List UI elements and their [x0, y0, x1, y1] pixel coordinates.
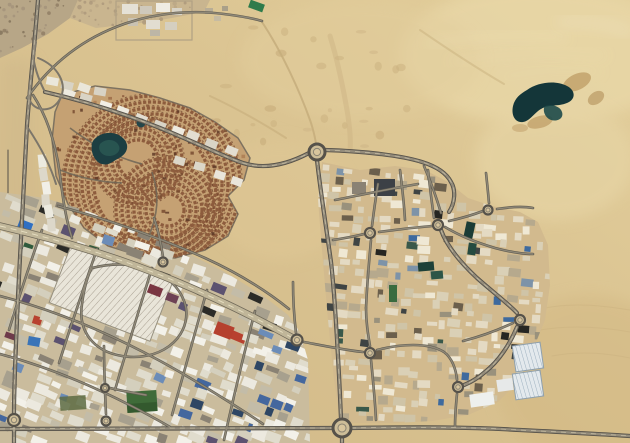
- community-roof: [114, 190, 117, 193]
- community-roof: [190, 152, 193, 155]
- warehouse-building: [491, 214, 497, 220]
- water-pond: [467, 243, 477, 256]
- warehouse-building: [391, 200, 403, 208]
- community-roof: [80, 109, 83, 112]
- warehouse-building: [397, 351, 405, 357]
- warehouse-building: [440, 312, 452, 317]
- community-roof: [162, 236, 164, 238]
- warehouse-building: [474, 383, 483, 392]
- warehouse-building: [335, 301, 347, 309]
- warehouse-building: [508, 268, 521, 278]
- community-roof: [135, 165, 138, 167]
- warehouse-building: [383, 407, 392, 412]
- sand-blotch: [303, 128, 312, 132]
- warehouse-building: [419, 208, 425, 217]
- building: [165, 22, 177, 30]
- community-roof: [186, 218, 190, 221]
- warehouse-building: [394, 232, 403, 238]
- sand-blotch: [260, 138, 266, 146]
- rock-speckle: [142, 20, 147, 25]
- warehouse-building: [457, 203, 467, 212]
- community-roof: [184, 238, 187, 241]
- warehouse-building: [535, 291, 543, 297]
- community-roof: [174, 152, 176, 155]
- community-roof: [88, 161, 90, 163]
- warehouse-building: [461, 372, 469, 380]
- warehouse-building: [533, 282, 540, 289]
- community-roof: [174, 173, 177, 175]
- community-roof: [211, 232, 214, 235]
- roundabout-island: [338, 424, 346, 432]
- warehouse-building: [517, 325, 530, 333]
- warehouse-building: [408, 371, 418, 378]
- warehouse-building: [417, 380, 430, 388]
- warehouse-building: [467, 348, 476, 355]
- community-roof: [72, 136, 75, 138]
- warehouse-building: [523, 226, 530, 234]
- rock-speckle: [95, 4, 99, 8]
- warehouse-building: [384, 348, 390, 356]
- community-roof: [143, 134, 145, 137]
- community-roof: [158, 170, 160, 172]
- warehouse-building: [466, 322, 472, 327]
- warehouse-building: [378, 331, 385, 338]
- satellite-imagery: [0, 0, 630, 443]
- warehouse-building: [494, 344, 501, 349]
- community-roof: [192, 118, 195, 120]
- sand-blotch: [360, 144, 369, 148]
- warehouse-building: [501, 332, 510, 340]
- road: [105, 392, 106, 414]
- green-field: [389, 285, 397, 302]
- warehouse-building: [413, 310, 421, 317]
- rock-speckle: [16, 5, 18, 7]
- community-roof: [241, 155, 245, 158]
- rock-speckle: [44, 6, 47, 9]
- community-roof: [175, 145, 177, 148]
- warehouse-building: [532, 315, 541, 324]
- building: [140, 6, 152, 14]
- community-roof: [88, 147, 91, 149]
- warehouse-building: [482, 229, 492, 237]
- community-roof: [210, 240, 213, 243]
- warehouse-building: [427, 322, 437, 326]
- community-roof: [165, 193, 167, 196]
- roundabout-island: [368, 351, 373, 356]
- rock-speckle: [189, 7, 191, 9]
- sand-blotch: [328, 108, 332, 112]
- rock-speckle: [83, 1, 86, 4]
- community-roof: [76, 168, 78, 170]
- community-roof: [170, 165, 173, 168]
- warehouse-building: [522, 256, 530, 261]
- warehouse-building: [374, 318, 380, 323]
- community-roof: [115, 178, 119, 181]
- warehouse-building: [345, 359, 355, 366]
- warehouse-building: [412, 208, 420, 216]
- rock-speckle: [8, 20, 11, 23]
- warehouse-building: [451, 308, 458, 315]
- rock-speckle: [102, 2, 105, 5]
- warehouse-building: [352, 224, 362, 234]
- community-roof: [136, 183, 139, 185]
- rock-speckle: [94, 19, 96, 21]
- community-roof: [163, 177, 167, 179]
- rock-speckle: [2, 8, 5, 11]
- rock-speckle: [21, 7, 25, 11]
- community-roof: [160, 194, 162, 197]
- warehouse-building: [378, 396, 388, 405]
- rock-speckle: [12, 46, 14, 48]
- warehouse-building: [417, 236, 430, 245]
- warehouse-building: [404, 288, 414, 298]
- community-roof: [200, 226, 202, 229]
- rock-speckle: [10, 46, 12, 48]
- warehouse-building: [500, 239, 507, 248]
- greenhouse-array: [512, 370, 543, 400]
- warehouse-building: [478, 295, 487, 304]
- rock-speckle: [44, 27, 46, 29]
- warehouse-building: [338, 248, 348, 257]
- community-roof: [181, 173, 183, 175]
- community-roof: [217, 131, 220, 134]
- roundabout-island: [11, 417, 16, 422]
- warehouse-building: [417, 245, 430, 254]
- community-roof: [78, 191, 81, 193]
- warehouse-building: [513, 216, 524, 222]
- warehouse-building: [465, 303, 473, 312]
- roundabout-island: [368, 231, 373, 236]
- warehouse-building: [380, 216, 391, 222]
- roundabout-island: [161, 260, 165, 264]
- community-roof: [143, 229, 145, 231]
- warehouse-building: [356, 407, 369, 412]
- rock-speckle: [22, 31, 25, 34]
- rock-speckle: [111, 24, 114, 27]
- warehouse-building: [411, 400, 418, 407]
- warehouse-building: [332, 187, 341, 192]
- warehouse-building: [458, 409, 469, 415]
- warehouse-building: [414, 333, 422, 340]
- community-roof: [73, 110, 75, 113]
- community-roof: [93, 204, 95, 207]
- community-roof: [152, 153, 155, 156]
- rock-speckle: [109, 0, 112, 3]
- warehouse-building: [405, 255, 414, 263]
- community-roof: [108, 97, 112, 100]
- warehouse-building: [344, 179, 351, 185]
- community-roof: [185, 163, 188, 166]
- warehouse-building: [515, 233, 522, 241]
- warehouse-building: [393, 414, 404, 422]
- warehouse-building: [414, 274, 422, 280]
- warehouse-building: [338, 266, 344, 273]
- warehouse-building: [367, 416, 374, 421]
- rock-speckle: [89, 1, 93, 5]
- sand-blotch: [310, 36, 316, 42]
- roundabout-island: [436, 223, 441, 228]
- community-roof: [146, 104, 149, 106]
- community-roof: [148, 183, 150, 185]
- warehouse-building: [497, 267, 510, 276]
- rock-speckle: [38, 29, 40, 31]
- warehouse-building: [335, 177, 343, 185]
- warehouse-building: [401, 309, 407, 314]
- sand-blotch: [250, 123, 255, 126]
- warehouse-building: [393, 397, 406, 407]
- warehouse-building: [433, 300, 440, 309]
- community-roof: [178, 188, 180, 190]
- community-roof: [180, 231, 184, 233]
- warehouse-building: [378, 414, 385, 421]
- rock-speckle: [31, 18, 34, 21]
- warehouse-building: [356, 250, 366, 259]
- warehouse-building: [355, 268, 364, 276]
- warehouse-building: [521, 278, 534, 287]
- roundabout-island: [518, 318, 523, 323]
- rock-speckle: [77, 5, 81, 9]
- warehouse-building: [381, 244, 387, 251]
- warehouse-building: [413, 293, 426, 298]
- warehouse-building: [485, 259, 493, 265]
- sand-blotch: [396, 64, 406, 71]
- warehouse-building: [374, 370, 382, 377]
- sand-blotch: [265, 105, 277, 112]
- warehouse-building: [357, 375, 367, 381]
- community-roof: [224, 130, 227, 132]
- warehouse-building: [407, 265, 418, 271]
- greenhouse-array: [512, 342, 543, 372]
- warehouse-building: [359, 411, 367, 416]
- sand-patch: [240, 0, 480, 120]
- warehouse-building: [354, 216, 364, 223]
- rock-speckle: [6, 31, 9, 34]
- community-roof: [162, 210, 166, 213]
- warehouse-building: [337, 293, 346, 299]
- community-roof: [122, 95, 124, 97]
- warehouse-building: [344, 391, 352, 398]
- rock-speckle: [121, 20, 123, 22]
- sand-blotch: [281, 27, 288, 36]
- community-roof: [119, 159, 122, 161]
- warehouse-building: [395, 272, 401, 279]
- rock-speckle: [29, 1, 31, 3]
- rock-speckle: [24, 35, 26, 37]
- warehouse-building: [329, 205, 342, 211]
- community-roof: [165, 212, 169, 214]
- warehouse-building: [524, 246, 531, 252]
- rock-speckle: [56, 3, 59, 6]
- warehouse-building: [466, 255, 477, 264]
- warehouse-building: [439, 320, 445, 329]
- community-roof: [158, 108, 160, 111]
- rock-speckle: [98, 24, 100, 26]
- community-roof: [170, 115, 173, 117]
- warehouse-building: [356, 197, 361, 201]
- sand-blotch: [356, 30, 367, 34]
- rock-speckle: [4, 15, 8, 19]
- satellite-map-view: [0, 0, 630, 443]
- warehouse-building: [388, 263, 399, 268]
- warehouse-building: [436, 291, 448, 301]
- rock-speckle: [45, 24, 47, 26]
- warehouse-building: [491, 332, 497, 341]
- warehouse-building: [507, 254, 520, 262]
- warehouse-building: [342, 215, 354, 221]
- warehouse-building: [329, 230, 335, 237]
- warehouse-building: [349, 366, 358, 371]
- sand-blotch: [220, 84, 232, 88]
- rock-speckle: [107, 7, 109, 9]
- warehouse-building: [437, 362, 442, 371]
- community-roof: [87, 135, 90, 137]
- rock-speckle: [117, 6, 120, 9]
- rock-speckle: [55, 7, 57, 9]
- community-roof: [211, 211, 214, 213]
- warehouse-building: [449, 329, 462, 338]
- warehouse-building: [495, 233, 506, 240]
- building: [352, 182, 366, 194]
- community-roof: [189, 163, 193, 166]
- dirt-mound: [512, 124, 528, 132]
- community-roof: [186, 244, 189, 246]
- warehouse-building: [519, 299, 530, 304]
- warehouse-building: [427, 355, 437, 363]
- community-roof: [134, 129, 137, 132]
- sand-blotch: [366, 107, 373, 111]
- sand-blotch: [359, 120, 368, 123]
- rock-speckle: [17, 11, 19, 13]
- warehouse-building: [532, 298, 540, 303]
- warehouse-building: [347, 311, 360, 318]
- community-roof: [97, 200, 99, 202]
- warehouse-building: [385, 324, 395, 332]
- warehouse-building: [475, 321, 488, 329]
- community-roof: [169, 146, 172, 149]
- sand-blotch: [248, 25, 258, 29]
- warehouse-building: [358, 207, 364, 214]
- community-roof: [238, 165, 241, 167]
- community-roof: [177, 110, 179, 113]
- warehouse-building: [412, 350, 421, 358]
- warehouse-building: [397, 323, 407, 330]
- warehouse-building: [425, 293, 435, 299]
- sand-blotch: [316, 63, 326, 70]
- warehouse-building: [376, 235, 389, 244]
- warehouse-building: [329, 222, 339, 227]
- rock-speckle: [89, 9, 92, 12]
- rock-speckle: [32, 30, 34, 32]
- warehouse-building: [525, 219, 535, 226]
- warehouse-building: [353, 237, 360, 246]
- warehouse-building: [378, 294, 385, 302]
- building: [122, 4, 138, 14]
- community-roof: [86, 194, 90, 196]
- community-roof: [168, 218, 171, 221]
- warehouse-building: [537, 242, 543, 251]
- warehouse-building: [394, 218, 400, 224]
- rock-speckle: [88, 16, 90, 18]
- community-roof: [170, 155, 172, 158]
- building: [156, 3, 170, 12]
- water-pond: [431, 270, 444, 279]
- rock-speckle: [79, 19, 82, 22]
- community-roof: [81, 130, 84, 133]
- warehouse-building: [398, 367, 410, 375]
- building: [150, 30, 160, 36]
- water-pond: [418, 261, 435, 271]
- warehouse-building: [437, 339, 443, 344]
- warehouse-building: [478, 348, 487, 353]
- warehouse-building: [507, 295, 519, 303]
- community-roof: [126, 223, 129, 225]
- rock-speckle: [2, 29, 6, 33]
- building: [496, 378, 514, 392]
- warehouse-building: [497, 215, 505, 221]
- rock-speckle: [47, 11, 51, 15]
- sand-blotch: [369, 50, 378, 54]
- warehouse-building: [349, 303, 361, 311]
- warehouse-building: [480, 248, 491, 256]
- warehouse-building: [418, 398, 428, 406]
- warehouse-building: [385, 173, 391, 178]
- community-roof: [143, 204, 146, 206]
- sand-blotch: [403, 105, 411, 112]
- sand-blotch: [376, 131, 385, 140]
- building: [146, 20, 160, 29]
- community-roof: [142, 185, 145, 187]
- building: [214, 16, 221, 21]
- rock-speckle: [81, 11, 84, 14]
- community-roof: [213, 166, 217, 169]
- sand-blotch: [375, 62, 382, 71]
- community-roof: [116, 164, 120, 166]
- warehouse-building: [535, 304, 541, 313]
- community-roof: [169, 184, 172, 186]
- warehouse-building: [454, 293, 464, 299]
- roundabout-island: [104, 419, 108, 423]
- community-roof: [67, 148, 69, 151]
- warehouse-building: [444, 257, 451, 262]
- warehouse-building: [447, 318, 461, 328]
- warehouse-building: [339, 242, 348, 247]
- community-roof: [193, 239, 196, 242]
- rock-speckle: [172, 1, 176, 5]
- roundabout-island: [103, 386, 107, 390]
- warehouse-building: [521, 290, 529, 296]
- warehouse-building: [495, 276, 505, 285]
- roundabout-island: [313, 148, 320, 155]
- sand-blotch: [270, 120, 277, 127]
- community-roof: [164, 145, 167, 147]
- community-roof: [57, 147, 59, 150]
- warehouse-building: [503, 317, 516, 322]
- warehouse-building: [419, 391, 428, 400]
- warehouse-building: [447, 347, 458, 356]
- rock-speckle: [83, 12, 86, 15]
- warehouse-building: [435, 394, 441, 400]
- warehouse-building: [352, 259, 360, 264]
- warehouse-building: [358, 358, 371, 365]
- community-roof: [92, 167, 96, 169]
- warehouse-building: [449, 409, 455, 414]
- rock-speckle: [11, 5, 14, 8]
- warehouse-building: [473, 294, 480, 299]
- warehouse-building: [386, 332, 397, 338]
- green-field: [60, 395, 87, 411]
- warehouse-building: [382, 196, 392, 203]
- warehouse-building: [376, 268, 389, 278]
